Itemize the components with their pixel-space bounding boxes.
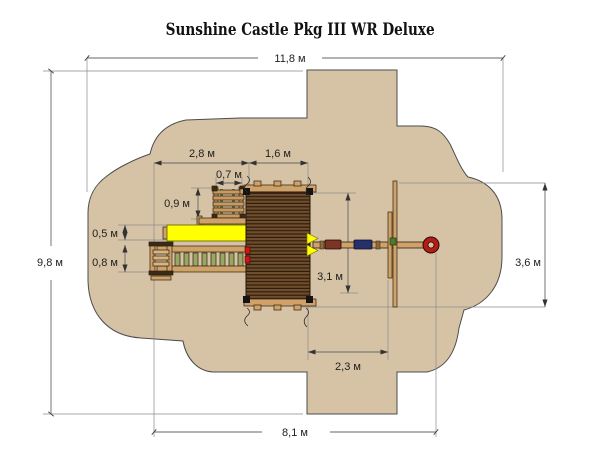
plan-canvas: Sunshine Castle Pkg III WR Deluxe [0,0,600,469]
page-title: Sunshine Castle Pkg III WR Deluxe [0,20,600,40]
dim-label-swing-offset: 2,3 м [335,361,361,373]
page-title-text: Sunshine Castle Pkg III WR Deluxe [166,20,435,40]
dim-label-deck-depth: 3,1 м [317,271,343,283]
dim-label-climber-depth: 0,9 м [164,198,190,210]
slide [163,225,250,241]
dim-label-overall-width: 11,8 м [274,53,305,65]
swing-seat-blue [354,240,372,249]
plan-drawing: 11,8 м 9,8 м 8,1 м 2,8 м 1,6 м 0,7 м 0,9… [0,0,600,469]
dim-label-ladder-slide-span: 2,8 м [189,148,215,160]
dim-label-ramp-width: 0,8 м [92,257,118,269]
swing-seat-red [325,240,341,249]
dim-label-deck-width: 1,6 м [265,148,291,160]
dim-label-climber-width: 0,7 м [216,169,242,181]
dim-label-overall-depth: 9,8 м [37,257,63,269]
dim-label-structure-width: 8,1 м [282,427,308,439]
dim-label-slide-width: 0,5 м [92,228,118,240]
dim-label-swing-zone-depth: 3,6 м [515,257,541,269]
tower-deck [243,181,316,310]
